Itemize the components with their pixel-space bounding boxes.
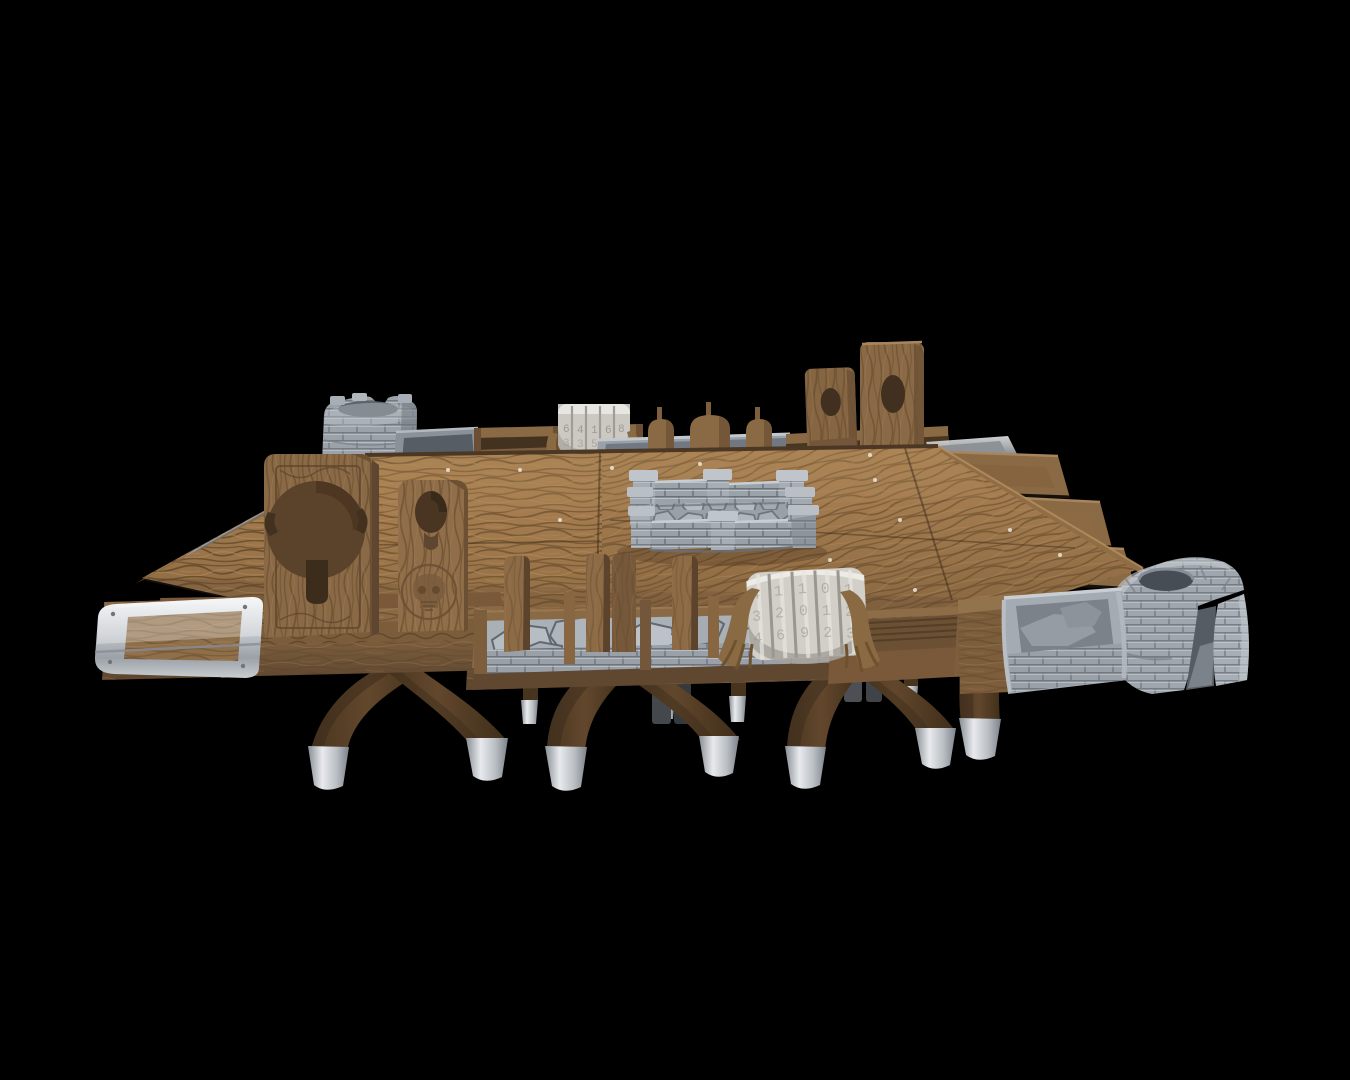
- svg-text:1: 1: [591, 425, 598, 437]
- svg-text:9: 9: [800, 625, 810, 642]
- svg-text:0: 0: [799, 603, 809, 620]
- svg-text:4: 4: [577, 425, 584, 437]
- svg-text:3: 3: [563, 438, 570, 450]
- svg-text:3: 3: [577, 439, 584, 451]
- svg-text:8: 8: [618, 424, 625, 436]
- svg-text:1: 1: [822, 603, 832, 620]
- svg-text:6: 6: [605, 425, 612, 437]
- svg-text:4: 4: [753, 630, 763, 647]
- svg-text:2: 2: [823, 625, 833, 642]
- svg-text:2: 2: [775, 605, 785, 622]
- svg-text:1: 1: [773, 583, 783, 600]
- svg-text:3: 3: [752, 608, 762, 625]
- svg-text:0: 0: [820, 581, 830, 598]
- svg-text:1: 1: [797, 581, 807, 598]
- svg-text:6: 6: [563, 424, 570, 436]
- svg-text:5: 5: [591, 439, 598, 451]
- svg-text:6: 6: [776, 627, 786, 644]
